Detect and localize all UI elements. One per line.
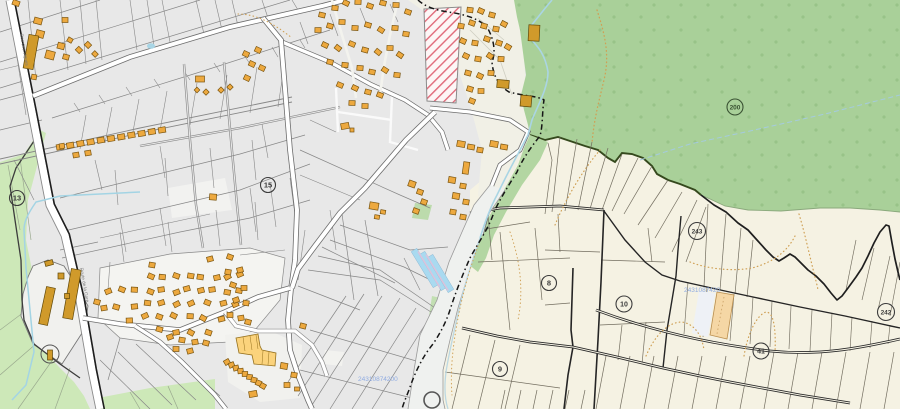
svg-text:10: 10	[620, 302, 628, 309]
svg-text:8: 8	[547, 279, 551, 288]
svg-text:242: 242	[881, 310, 892, 317]
svg-text:200: 200	[730, 105, 741, 112]
svg-text:24310874200: 24310874200	[358, 376, 398, 383]
svg-text:243: 243	[692, 229, 703, 236]
svg-text:9: 9	[498, 365, 502, 374]
svg-text:2431087420: 2431087420	[684, 287, 721, 294]
svg-text:41: 41	[757, 349, 765, 356]
svg-text:13: 13	[13, 194, 21, 203]
svg-text:15: 15	[264, 181, 272, 190]
